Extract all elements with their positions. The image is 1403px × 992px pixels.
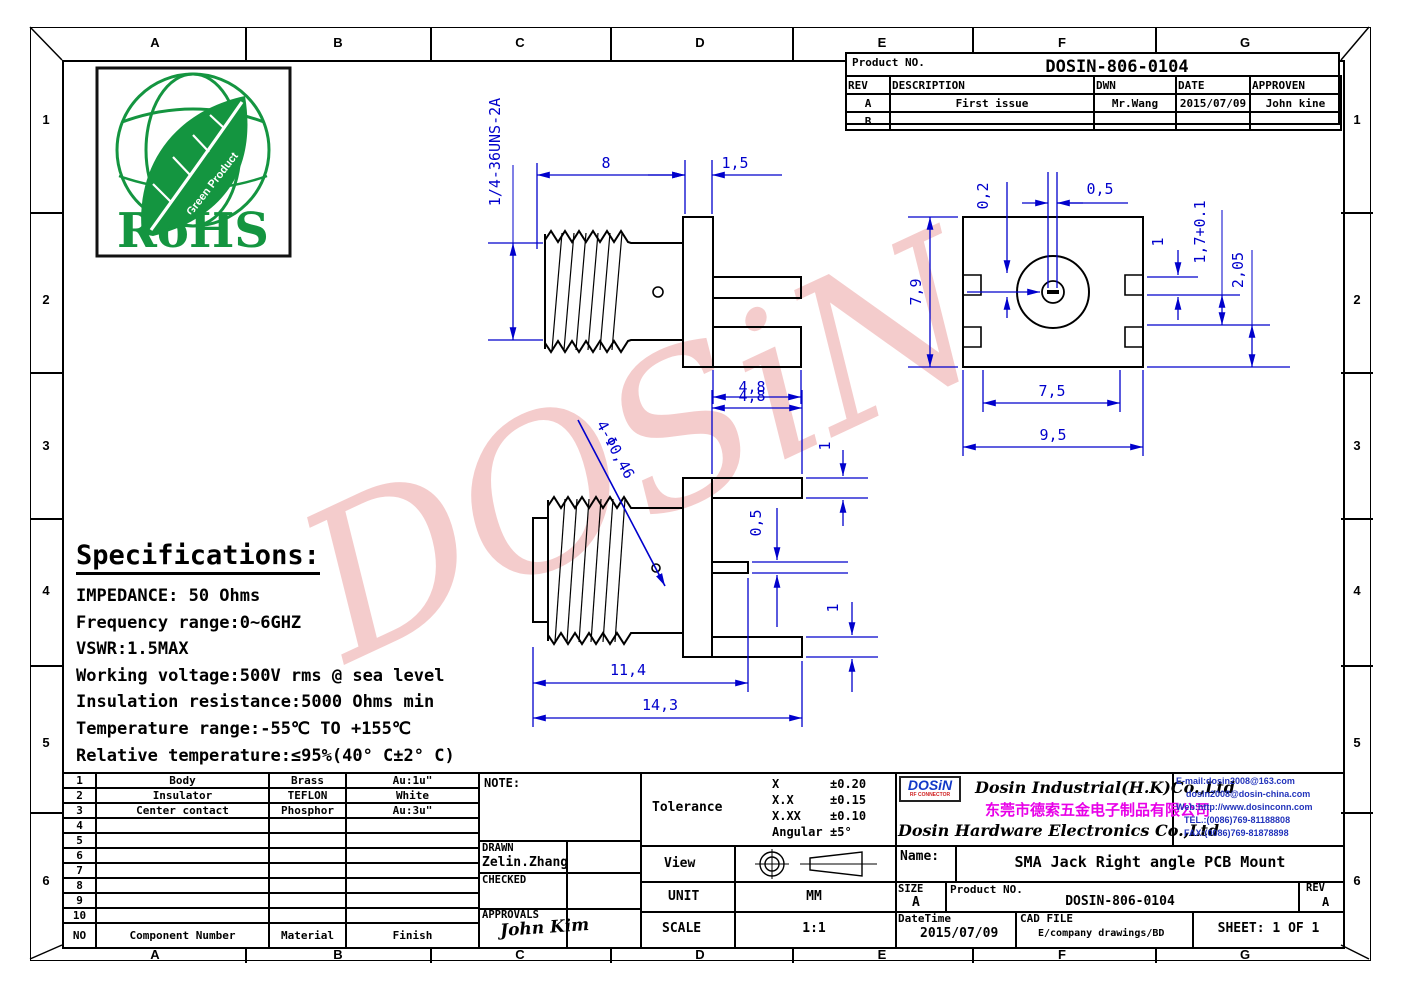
company-contact: E-mail:dosin2008@163.com dosin2008@dosin… [1176, 775, 1342, 840]
titleblock-divider [1298, 881, 1300, 911]
parts-row: 3Center contactPhosphorAu:3u" [63, 803, 479, 818]
rev-value: A [1322, 895, 1329, 909]
titleblock-divider [640, 772, 642, 947]
parts-row: 2InsulatorTEFLONWhite [63, 788, 479, 803]
zone-tick [30, 812, 62, 814]
specifications-block: Specifications: IMPEDANCE: 50 Ohms Frequ… [76, 540, 455, 769]
titleblock-divider [1015, 911, 1017, 947]
revision-table: Product NO. DOSIN-806-0104 REV DESCRIPTI… [845, 52, 1340, 125]
specifications-title: Specifications: [76, 540, 320, 575]
product-no-value2: DOSIN-806-0104 [1000, 894, 1240, 909]
titleblock-divider [945, 881, 947, 911]
spec-line: Relative temperature:≤95%(40° C±2° C) [76, 743, 455, 770]
zone-number-right: 4 [1350, 583, 1364, 598]
zone-tick [30, 665, 62, 667]
zone-tick [792, 947, 794, 963]
note-label: NOTE: [484, 776, 520, 790]
rev-label: REV [1306, 882, 1325, 894]
dosin-logo: DOSiN RF CONNECTOR [899, 776, 961, 802]
zone-letter-top: D [693, 35, 707, 50]
parts-row: 9 [63, 893, 479, 908]
zone-tick [245, 947, 247, 963]
view-label: View [664, 856, 695, 871]
revision-row: B [846, 112, 1341, 130]
spec-line: Temperature range:-55℃ TO +155℃ [76, 716, 455, 743]
datetime-label: DateTime [898, 912, 951, 925]
product-no-value: DOSIN-806-0104 [967, 57, 1267, 77]
spec-line: Working voltage:500V rms @ sea level [76, 663, 455, 690]
contact-line: Web:http://www.dosinconn.com [1176, 801, 1342, 814]
zone-tick [792, 27, 794, 60]
parts-table: 1BodyBrassAu:1u" 2InsulatorTEFLONWhite 3… [62, 772, 480, 949]
name-label: Name: [900, 849, 939, 864]
zone-letter-top: E [875, 35, 889, 50]
zone-letter-bottom: G [1238, 947, 1252, 962]
company-name-en2: Dosin Hardware Electronics Co.,Ltd [898, 821, 1219, 840]
zone-tick [972, 947, 974, 963]
unit-value: MM [734, 889, 894, 904]
tolerance-key: X [772, 777, 779, 791]
zone-tick [30, 518, 62, 520]
tolerance-value: ±0.20 [830, 777, 866, 791]
datetime-value: 2015/07/09 [920, 926, 998, 941]
zone-number-left: 4 [39, 583, 53, 598]
tolerance-value: ±0.15 [830, 793, 866, 807]
zone-number-right: 1 [1350, 112, 1364, 127]
zone-letter-top: G [1238, 35, 1252, 50]
zone-letter-bottom: E [875, 947, 889, 962]
parts-row: 10 [63, 908, 479, 923]
zone-tick [1341, 665, 1373, 667]
zone-letter-bottom: F [1055, 947, 1069, 962]
titleblock-line [640, 845, 1345, 847]
parts-row: 6 [63, 848, 479, 863]
zone-tick [1341, 212, 1373, 214]
zone-number-right: 3 [1350, 438, 1364, 453]
parts-row: 5 [63, 833, 479, 848]
zone-letter-top: F [1055, 35, 1069, 50]
spec-line: Insulation resistance:5000 Ohms min [76, 689, 455, 716]
zone-letter-bottom: A [148, 947, 162, 962]
titleblock-divider [478, 772, 480, 947]
zone-number-right: 2 [1350, 292, 1364, 307]
zone-tick [1341, 812, 1373, 814]
zone-letter-top: B [331, 35, 345, 50]
zone-tick [610, 27, 612, 60]
revision-header-row: REV DESCRIPTION DWN DATE APPROVEN [846, 76, 1341, 94]
drawn-label: DRAWN [482, 842, 514, 854]
zone-number-left: 2 [39, 292, 53, 307]
zone-letter-top: A [148, 35, 162, 50]
zone-tick [430, 947, 432, 963]
zone-tick [430, 27, 432, 60]
tolerance-key: X.X [772, 793, 794, 807]
zone-letter-top: C [513, 35, 527, 50]
zone-number-right: 5 [1350, 735, 1364, 750]
zone-number-left: 6 [39, 873, 53, 888]
parts-header-row: NOComponent Number MaterialFinish [63, 923, 479, 948]
zone-letter-bottom: C [513, 947, 527, 962]
engineering-drawing-page: { "page": { "watermark": "DOSiN", "color… [0, 0, 1403, 992]
zone-tick [1341, 518, 1373, 520]
part-name-value: SMA Jack Right angle PCB Mount [955, 853, 1345, 871]
zone-number-left: 3 [39, 438, 53, 453]
parts-row: 8 [63, 878, 479, 893]
parts-row: 7 [63, 863, 479, 878]
titleblock-divider [895, 772, 897, 947]
size-label: SIZE [898, 883, 923, 895]
contact-line: TEL.:(0086)769-81188808 [1176, 814, 1342, 827]
tolerance-key: X.XX [772, 809, 801, 823]
zone-number-left: 5 [39, 735, 53, 750]
zone-number-left: 1 [39, 112, 53, 127]
tolerance-key: Angular [772, 825, 823, 839]
zone-tick [610, 947, 612, 963]
contact-line: dosin2008@dosin-china.com [1176, 788, 1342, 801]
titleblock-line [640, 911, 1345, 913]
contact-line: FAX:(0086)769-81878898 [1176, 827, 1342, 840]
sheet-label: SHEET: 1 OF 1 [1192, 921, 1345, 936]
zone-tick [1155, 947, 1157, 963]
scale-value: 1:1 [734, 921, 894, 936]
titleblock-top-line [62, 772, 1343, 774]
checked-label: CHECKED [482, 874, 526, 886]
spec-line: Frequency range:0~6GHZ [76, 610, 455, 637]
cadfile-label: CAD FILE [1020, 912, 1073, 925]
zone-tick [1341, 372, 1373, 374]
cadfile-value: E/company drawings/BD [1038, 928, 1164, 939]
zone-letter-bottom: D [693, 947, 707, 962]
size-value: A [912, 895, 920, 910]
parts-row: 4 [63, 818, 479, 833]
zone-number-right: 6 [1350, 873, 1364, 888]
tolerance-value: ±5° [830, 825, 852, 839]
revision-row: A First issue Mr.Wang 2015/07/09 John ki… [846, 94, 1341, 112]
zone-tick [30, 372, 62, 374]
zone-tick [245, 27, 247, 60]
scale-label: SCALE [662, 921, 701, 936]
zone-letter-bottom: B [331, 947, 345, 962]
spec-line: VSWR:1.5MAX [76, 636, 455, 663]
contact-line: E-mail:dosin2008@163.com [1176, 775, 1342, 788]
zone-tick [30, 212, 62, 214]
product-no-label: Product NO. [852, 56, 925, 69]
spec-line: IMPEDANCE: 50 Ohms [76, 583, 455, 610]
unit-label: UNIT [668, 889, 699, 904]
parts-row: 1BodyBrassAu:1u" [63, 773, 479, 788]
tolerance-value: ±0.10 [830, 809, 866, 823]
tolerance-label: Tolerance [652, 800, 722, 815]
drawn-name: Zelin.Zhang [482, 855, 568, 870]
